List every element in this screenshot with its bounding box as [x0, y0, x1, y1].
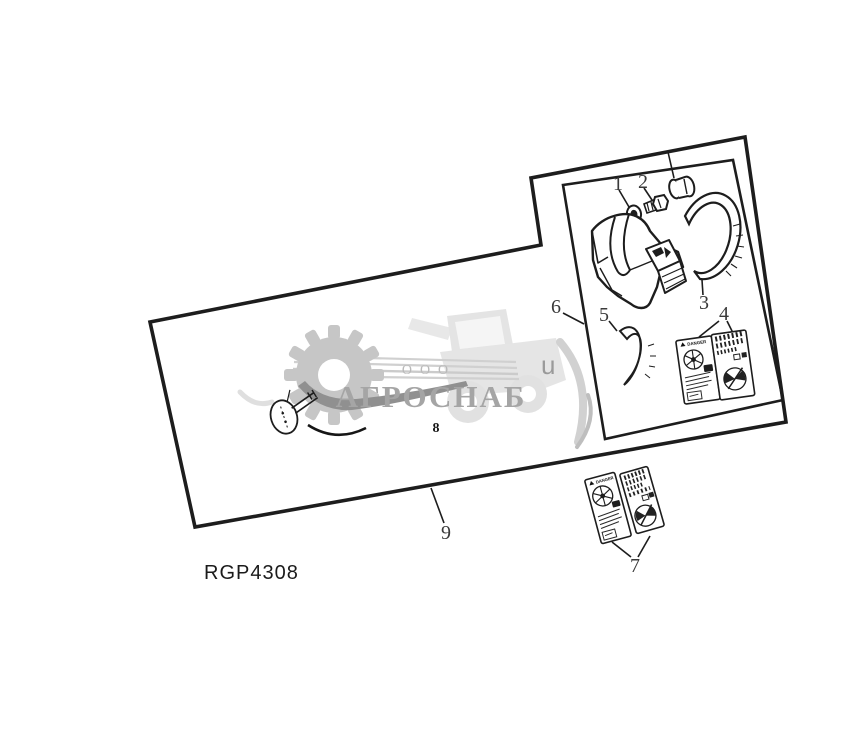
callout-8: 8: [433, 422, 440, 436]
watermark-suffix-letter: u: [541, 350, 555, 381]
callout-7: 7: [630, 556, 640, 576]
callout-5: 5: [599, 305, 609, 325]
parts-diagram: DANGER DANGER: [0, 0, 841, 731]
callout-2: 2: [638, 172, 648, 192]
parts-panel: [563, 160, 783, 439]
watermark-org-form: ООО: [402, 363, 456, 379]
callout-9: 9: [441, 523, 451, 543]
callout-1: 1: [613, 174, 623, 194]
callout-4: 4: [719, 304, 729, 324]
leader-curve-8: [308, 425, 366, 435]
callout-6: 6: [551, 297, 561, 317]
snap-ring-large: [685, 193, 744, 279]
callout-3: 3: [699, 293, 709, 313]
bolt-part: [644, 195, 668, 213]
watermark-company-name: АГРОСНАБ: [336, 379, 527, 415]
cap-nut-part: [667, 177, 694, 200]
guard-cover-part: [592, 214, 686, 308]
snap-ring-small: [620, 327, 656, 385]
figure-code: RGP4308: [204, 562, 299, 585]
